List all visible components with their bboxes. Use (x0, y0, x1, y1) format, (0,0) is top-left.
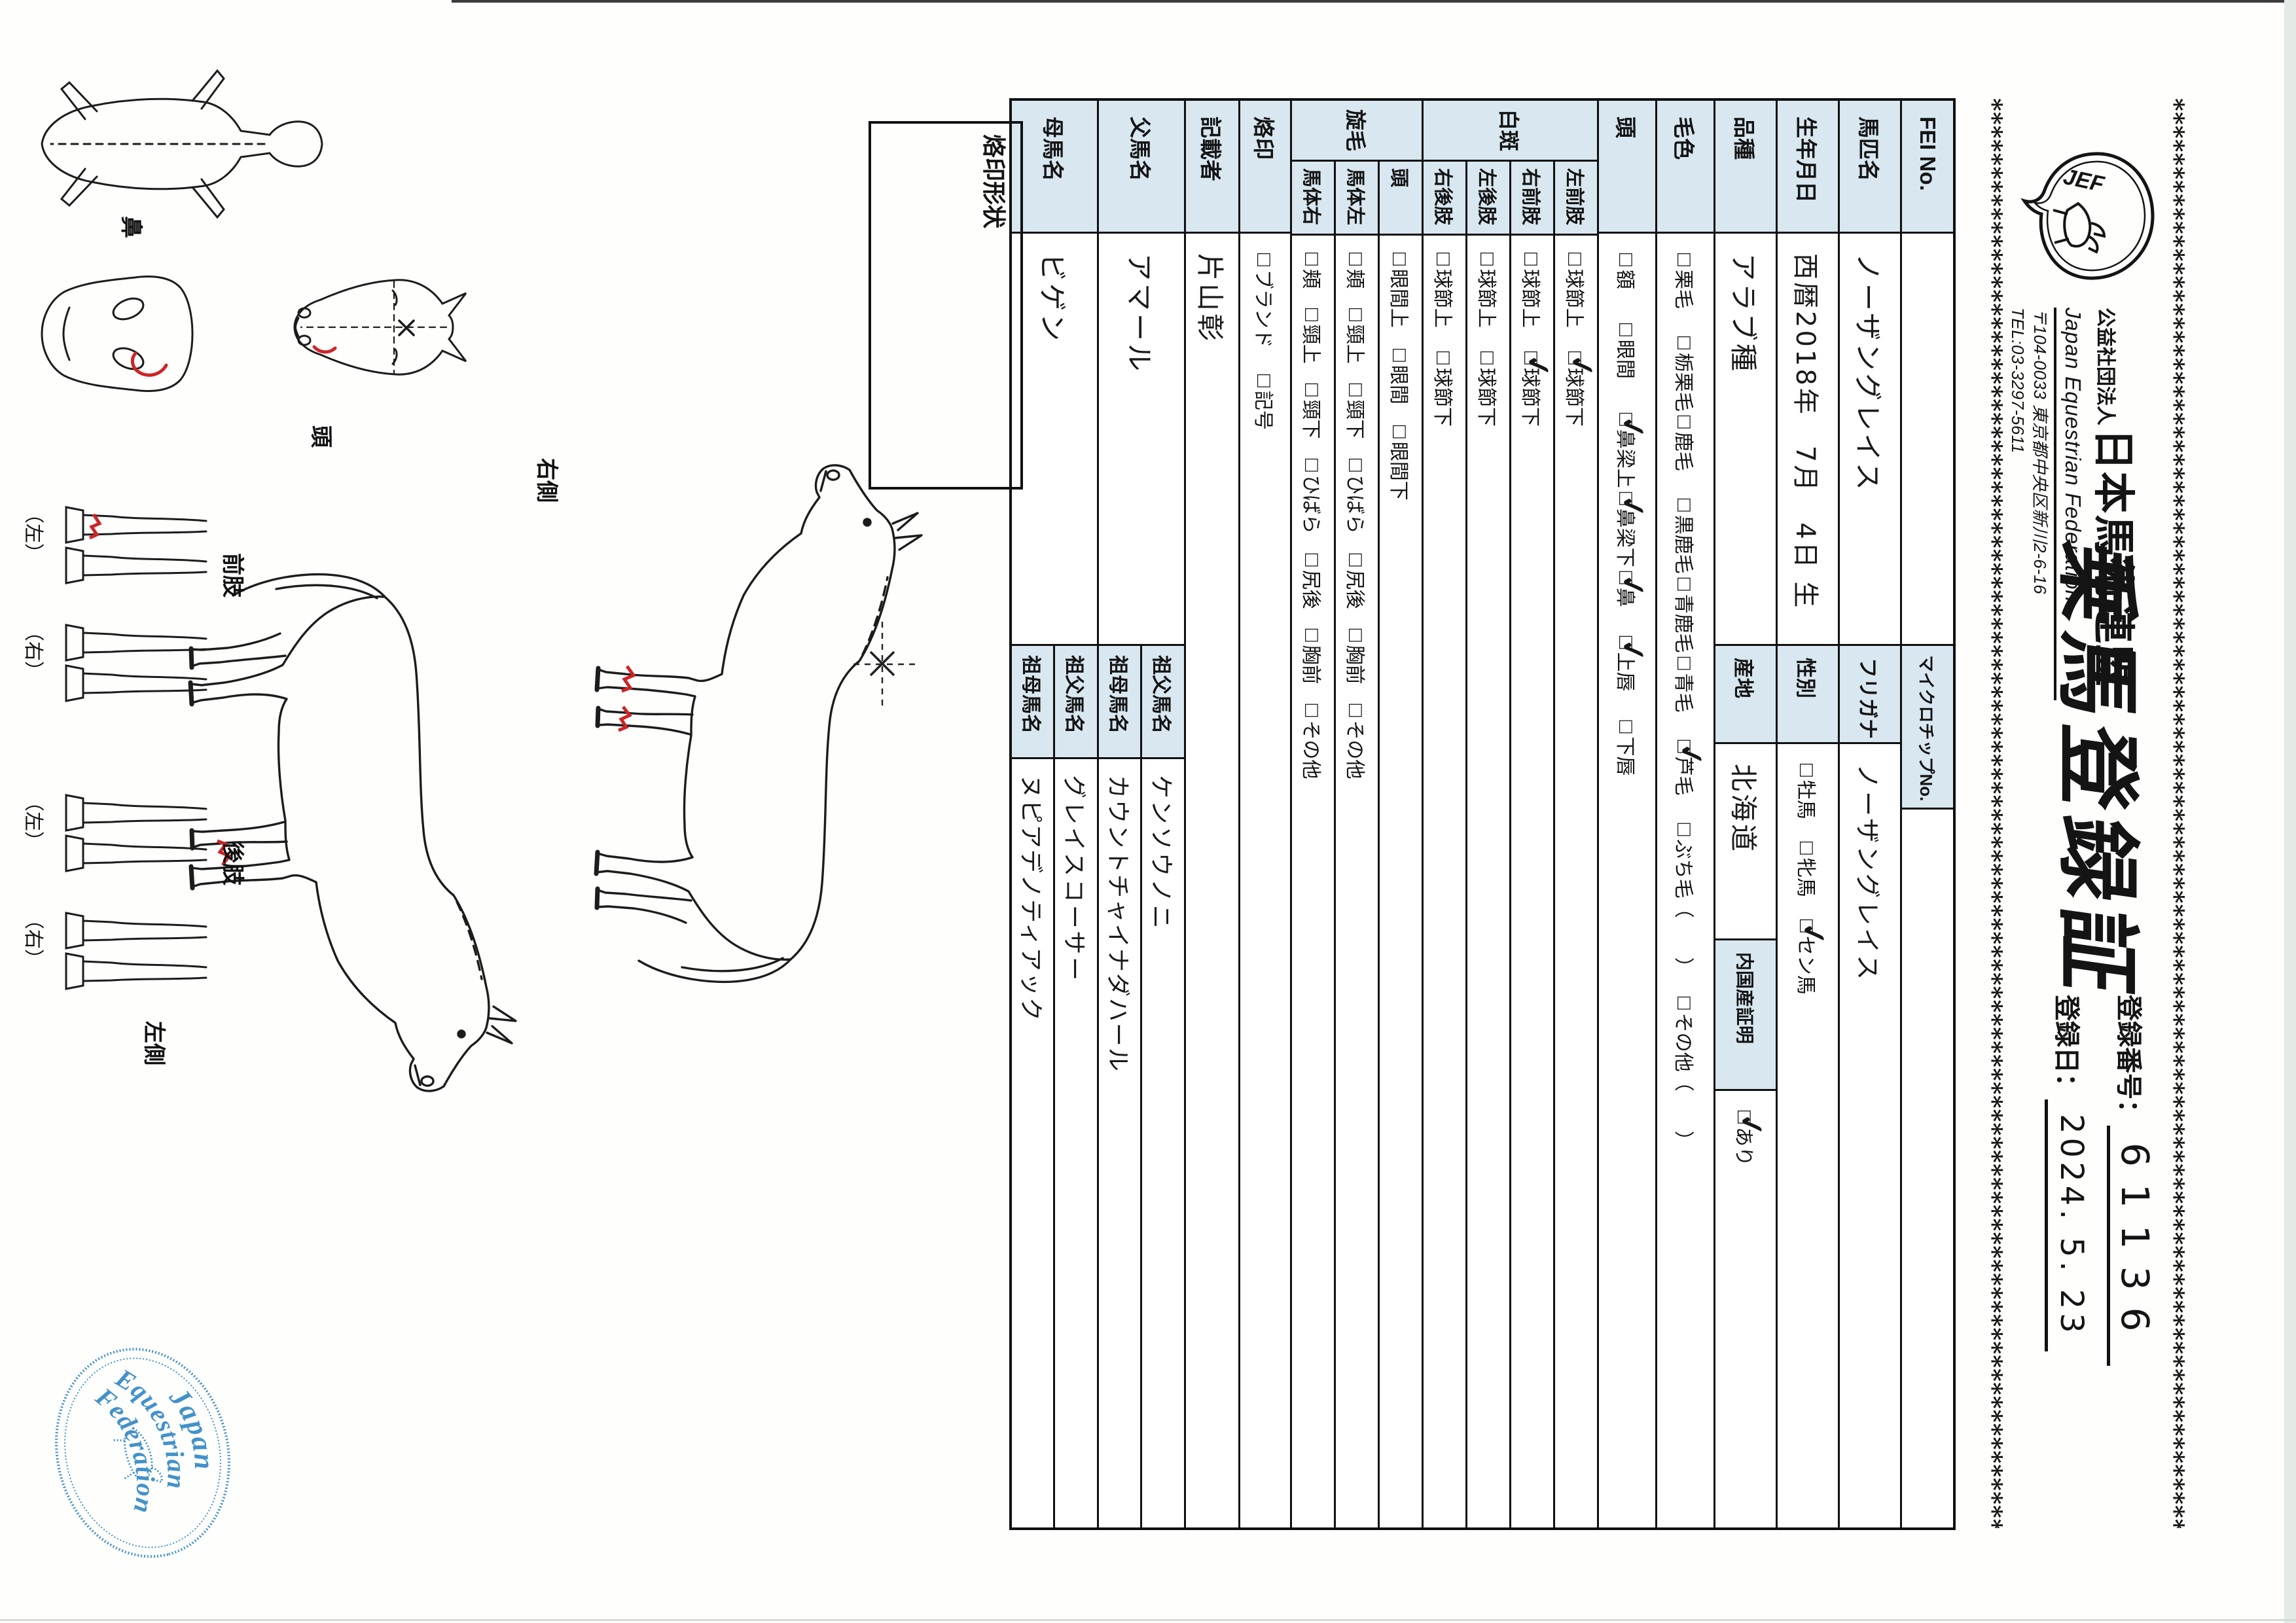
right-hindleg-label: 右後肢 (1424, 162, 1465, 234)
head-markings-options: □額□眼間□✓鼻梁上□✓鼻梁下□✓鼻□✓上唇□下唇 (1613, 253, 1641, 776)
certificate-page: ****************************************… (0, 0, 2296, 1623)
certificate-title: 乗馬登録証 (2044, 535, 2165, 1010)
row-horse-name: 馬匹名 ノーザングレイス フリガナ ノーザングレイス (1840, 101, 1902, 1527)
breed-label: 品種 (1715, 101, 1776, 232)
reg-no-label: 登録番号： (2107, 995, 2150, 1126)
row-sire-granddam: 祖母馬名 カウントチャイナダハール (1099, 646, 1143, 1527)
breed-value: アラブ種 (1715, 232, 1776, 644)
label-front-right: （右） (21, 622, 50, 681)
horse-right-side-view (596, 465, 922, 982)
coat-label: 毛色 (1657, 101, 1713, 232)
row-dam-granddam: 祖母馬名 ヌピアデノティアック (1012, 646, 1056, 1527)
sex-label: 性別 (1778, 644, 1838, 742)
whorl-head-options: □眼間上□眼間□眼間下 (1386, 253, 1415, 501)
logo-horse-rider-icon (2053, 204, 2104, 252)
label-hind-left: （左） (21, 792, 50, 851)
red-mark-muzzle (132, 353, 166, 375)
row-brand: 烙印 □ブランド□記号 (1240, 101, 1292, 1527)
right-foreleg-options: □球節上□✓球節下 (1518, 253, 1547, 427)
group-whorls: 旋毛 頭 □眼間上□眼間□眼間下 馬体左 □頬□頸上□頸下□ひばら□尻後□胸前□… (1292, 101, 1424, 1527)
whorl-body-left-options: □頬□頸上□頸下□ひばら□尻後□胸前□その他 (1342, 253, 1371, 779)
birth-label: 生年月日 (1778, 101, 1838, 232)
dam-grandsire-label: 祖父馬名 (1056, 646, 1098, 757)
kana-label: フリガナ (1840, 644, 1900, 742)
fei-no-label: FEI No. (1902, 101, 1953, 232)
horse-name-label: 馬匹名 (1840, 101, 1900, 232)
group-white-markings: 白斑 左前肢 □球節上□✓球節下 右前肢 □球節上□✓球節下 左後肢 □球節上□… (1424, 101, 1599, 1527)
row-coat-color: 毛色 □栗毛□栃栗毛□鹿毛□黒鹿毛□青鹿毛□青毛□✓芦毛□ぶち毛（ ）□その他（… (1657, 101, 1715, 1527)
row-right-foreleg: 右前肢 □球節上□✓球節下 (1511, 162, 1555, 1527)
horse-name-value: ノーザングレイス (1840, 232, 1900, 644)
left-hindleg-label: 左後肢 (1467, 162, 1509, 234)
label-right-side: 右側 (533, 458, 565, 503)
row-sire-grandsire: 祖父馬名 ケンソウノニ (1143, 646, 1185, 1527)
row-whorl-head: 頭 □眼間上□眼間□眼間下 (1380, 162, 1422, 1527)
microchip-label: マイクロチップNo. (1902, 644, 1953, 808)
reg-date-value: 2024. 5. 23 (2045, 1099, 2090, 1351)
label-front-limbs: 前肢 (219, 553, 251, 597)
left-foreleg-options: □球節上□✓球節下 (1562, 253, 1590, 427)
org-tel: TEL:03-3297-5611 (2007, 308, 2029, 713)
row-whorl-body-right: 馬体右 □頬□頸上□頸下□ひばら□尻後□胸前□その他 (1292, 162, 1336, 1527)
right-hindleg-options: □球節上□球節下 (1430, 253, 1459, 427)
row-dam-grandsire: 祖父馬名 グレイスコーサー (1056, 646, 1098, 1527)
jef-logo: JEF (2008, 141, 2162, 291)
recorder-label: 記載者 (1186, 101, 1238, 232)
domestic-cert-options: □✓あり (1731, 1111, 1760, 1166)
scan-edge-bottom (0, 1619, 2296, 1621)
scan-edge-top (452, 0, 2296, 3)
origin-value: 北海道 (1715, 742, 1776, 938)
kana-value: ノーザングレイス (1840, 742, 1900, 1527)
sire-granddam-label: 祖母馬名 (1099, 646, 1141, 757)
asterisk-border-bottom: ****************************************… (1981, 98, 2003, 1528)
left-foreleg-label: 左前肢 (1555, 162, 1597, 234)
whorl-body-left-label: 馬体左 (1336, 162, 1378, 234)
hind-legs-view (66, 795, 206, 989)
red-mark-head (314, 347, 335, 352)
front-legs-view (66, 507, 206, 701)
row-left-hindleg: 左後肢 □球節上□球節下 (1467, 162, 1511, 1527)
dam-value: ビゲン (1012, 232, 1097, 644)
white-markings-label: 白斑 (1424, 101, 1597, 160)
sire-grandsire-label: 祖父馬名 (1143, 646, 1185, 757)
horse-info-table: FEI No. マイクロチップNo. 馬匹名 ノーザングレイス フリガナ ノーザ… (1009, 98, 1956, 1530)
label-left-side: 左側 (140, 1021, 172, 1065)
muzzle-view (42, 277, 192, 391)
dam-granddam-value: ヌピアデノティアック (1012, 757, 1054, 1527)
sire-grandsire-value: ケンソウノニ (1143, 757, 1185, 1527)
birth-value: 西暦2018年 7月 4日 生 (1778, 232, 1838, 644)
row-right-hindleg: 右後肢 □球節上□球節下 (1424, 162, 1467, 1527)
right-foreleg-label: 右前肢 (1511, 162, 1553, 234)
microchip-value (1902, 808, 1953, 1527)
brand-label: 烙印 (1240, 101, 1290, 232)
row-left-foreleg: 左前肢 □球節上□✓球節下 (1555, 162, 1597, 1527)
dam-grandsire-value: グレイスコーサー (1056, 757, 1098, 1527)
dam-label: 母馬名 (1012, 101, 1097, 232)
scanned-certificate: ****************************************… (0, 0, 2296, 1623)
org-prefix: 公益社団法人 (2094, 308, 2116, 425)
whorls-label: 旋毛 (1292, 101, 1422, 160)
row-fei-no: FEI No. マイクロチップNo. (1902, 101, 1953, 1527)
reg-no-value: 61136 (2107, 1126, 2157, 1366)
row-dam: 母馬名 ビゲン 祖父馬名 グレイスコーサー 祖母馬名 ヌピアデノティアック (1012, 101, 1099, 1527)
horse-left-side-view (190, 575, 516, 1091)
left-hindleg-options: □球節上□球節下 (1474, 253, 1503, 427)
logo-jef-text: JEF (2061, 164, 2107, 197)
label-nose: 鼻 (117, 216, 149, 238)
row-sire: 父馬名 アマール 祖父馬名 ケンソウノニ 祖母馬名 カウントチャイナダハール (1099, 101, 1186, 1527)
scan-edge-right (2284, 0, 2296, 1623)
red-mark-front-fetlocks (619, 666, 634, 730)
label-front-left: （左） (21, 504, 50, 563)
row-whorl-body-left: 馬体左 □頬□頸上□頸下□ひばら□尻後□胸前□その他 (1336, 162, 1380, 1527)
domestic-cert-label: 内国産証明 (1715, 938, 1776, 1089)
whorl-body-right-options: □頬□頸上□頸下□ひばら□尻後□胸前□その他 (1299, 253, 1327, 779)
asterisk-border-top: ****************************************… (2162, 98, 2185, 1528)
row-head-markings: 頭 □額□眼間□✓鼻梁上□✓鼻梁下□✓鼻□✓上唇□下唇 (1599, 101, 1657, 1527)
row-breed: 品種 アラブ種 産地 北海道 内国産証明 □✓あり (1715, 101, 1778, 1527)
brand-shape-label: 烙印形状 (978, 124, 1020, 487)
jef-stamp: Japan Equestrian Federation (9, 1329, 274, 1577)
reg-date-label: 登録日： (2045, 995, 2088, 1099)
sex-options: □牡馬□牝馬□✓セン馬 (1793, 764, 1822, 995)
brand-options: □ブランド□記号 (1251, 253, 1280, 430)
label-hind-limbs: 後肢 (219, 841, 251, 885)
sire-value: アマール (1099, 232, 1184, 644)
sire-label: 父馬名 (1099, 101, 1184, 232)
head-front-view (295, 280, 466, 374)
label-hind-right: （右） (21, 910, 50, 969)
whorl-body-right-label: 馬体右 (1292, 162, 1334, 234)
fei-no-value (1902, 232, 1953, 644)
coat-options: □栗毛□栃栗毛□鹿毛□黒鹿毛□青鹿毛□青毛□✓芦毛□ぶち毛（ ）□その他（ ） (1671, 253, 1700, 1150)
head-markings-label: 頭 (1599, 101, 1655, 232)
origin-label: 産地 (1715, 644, 1776, 742)
registration-block: 登録番号： 61136 登録日： 2024. 5. 23 (2028, 995, 2157, 1525)
sire-granddam-value: カウントチャイナダハール (1099, 757, 1141, 1527)
label-head: 頭 (307, 425, 339, 448)
row-birth-date: 生年月日 西暦2018年 7月 4日 生 性別 □牡馬□牝馬□✓セン馬 (1778, 101, 1840, 1527)
whorl-head-label: 頭 (1380, 162, 1422, 234)
recorder-value: 片山彰 (1186, 232, 1238, 1527)
row-recorder: 記載者 片山彰 (1186, 101, 1240, 1527)
dam-granddam-label: 祖母馬名 (1012, 646, 1054, 757)
belly-view (42, 71, 322, 217)
